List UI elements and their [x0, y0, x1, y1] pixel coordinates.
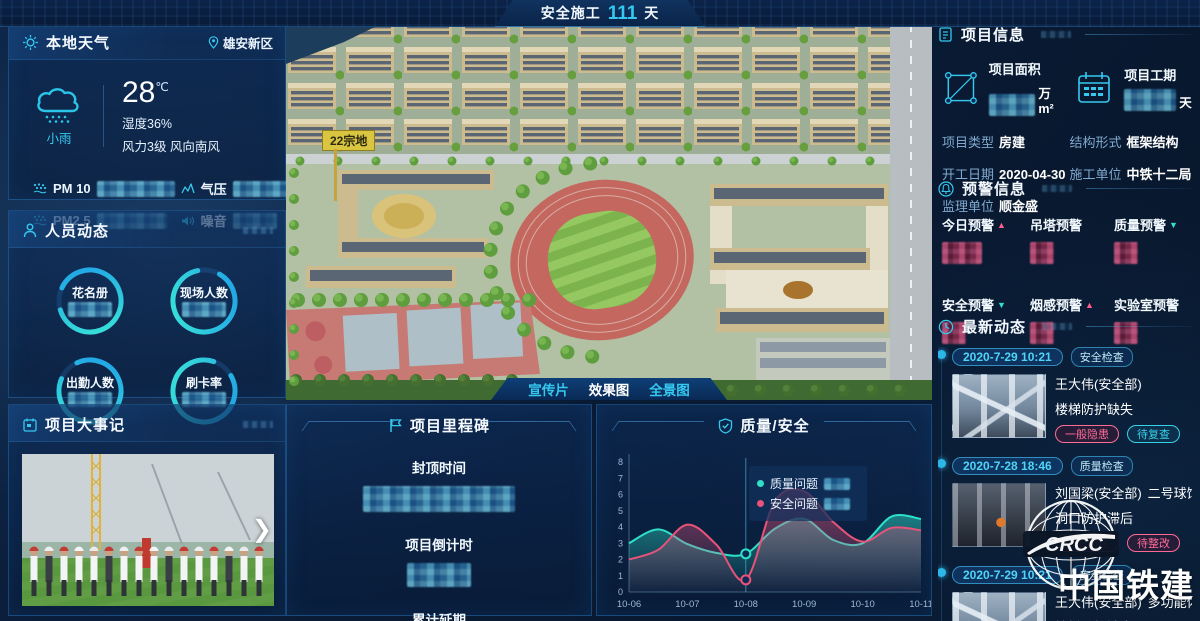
tooltip-row: 安全问题 — [757, 495, 859, 512]
temperature-value: 28 — [122, 76, 155, 109]
svg-text:6: 6 — [618, 490, 623, 500]
field-structure-type: 结构形式框架结构 — [1070, 132, 1192, 151]
ring-label: 花名册 — [53, 284, 127, 301]
warning-1: 吊塔预警 — [1030, 215, 1114, 269]
warning-value-censored — [1030, 242, 1114, 269]
svg-text:8: 8 — [618, 457, 623, 467]
scene-tab-2[interactable]: 全景图 — [649, 379, 690, 399]
feed-item-top: 2020-7-29 10:21安全检查 — [952, 347, 1192, 367]
warning-label-text: 吊塔预警 — [1030, 215, 1082, 234]
progress-ring — [53, 264, 127, 338]
trend-down-icon: ▼ — [1169, 220, 1178, 230]
weather-condition: 小雨 — [33, 85, 85, 147]
feed-photo-thumbnail — [952, 483, 1046, 547]
warning-label-text: 安全预警 — [942, 295, 994, 314]
ring-value-censored — [182, 302, 226, 317]
personnel-ring-1: 现场人数 — [167, 264, 241, 338]
feed-header: 最新动态 — [938, 316, 1192, 337]
weather-panel-title: 本地天气 — [46, 32, 110, 53]
field-project-type: 项目类型房建 — [942, 132, 1066, 151]
svg-text:10-08: 10-08 — [734, 599, 758, 610]
warning-label: 吊塔预警 — [1030, 215, 1114, 234]
feed-photo-thumbnail — [952, 592, 1046, 621]
feed-item-1[interactable]: 2020-7-28 18:46质量检查刘国梁(安全部)二号球馆洞口防护滞后一般问… — [952, 456, 1192, 552]
svg-text:1: 1 — [618, 571, 623, 581]
timeline-dot-icon — [938, 568, 946, 577]
safe-days-unit: 天 — [644, 3, 659, 23]
location-pin-icon — [208, 36, 219, 49]
quality-safety-chart: 01234567810-0610-0710-0810-0910-1010-11 … — [597, 440, 931, 621]
metric-pm10-value-censored — [97, 181, 175, 197]
feed-item-texts: 刘国梁(安全部)二号球馆洞口防护滞后一般问题待整改 — [1055, 483, 1192, 552]
safe-days-banner: 安全施工 111 天 — [495, 0, 706, 27]
warning-value-block — [942, 242, 982, 264]
feed-category-badge: 质量检查 — [1071, 456, 1133, 476]
feed-item-top: 2020-7-28 18:46质量检查 — [952, 456, 1192, 476]
events-panel-header: 项目大事记 — [9, 405, 285, 442]
feed-item-top: 2020-7-29 10:21安全检查 — [952, 565, 1192, 585]
svg-text:7: 7 — [618, 473, 623, 483]
feed-item-0[interactable]: 2020-7-29 10:21安全检查王大伟(安全部)楼梯防护缺失一般隐患待复查 — [952, 347, 1192, 443]
decorative-bracket — [301, 421, 394, 431]
feed-category-badge: 安全检查 — [1071, 565, 1133, 585]
weather-details: 28℃ 湿度36% 风力3级 风向南风 — [122, 76, 220, 155]
document-icon — [938, 27, 953, 42]
feed-tag-list: 一般问题待整改 — [1055, 534, 1192, 552]
milestone-group-photo: ❯ — [22, 454, 274, 606]
feed-tag-待整改: 待整改 — [1127, 534, 1180, 552]
decorative-bracket — [483, 421, 576, 431]
calendar-flag-icon — [23, 418, 37, 432]
feed-item-body: 刘国梁(安全部)二号球馆洞口防护滞后一般问题待整改 — [952, 483, 1192, 552]
trend-down-icon: ▼ — [997, 300, 1006, 310]
warning-label: 安全预警▼ — [942, 295, 1030, 314]
warning-label: 质量预警▼ — [1114, 215, 1196, 234]
feed-inspector-name: 王大伟(安全部) — [1055, 592, 1142, 611]
warning-label-text: 今日预警 — [942, 215, 994, 234]
decorative-blur — [243, 421, 273, 428]
personnel-rings: 花名册现场人数出勤人数刷卡率 — [9, 248, 285, 428]
field-value: 房建 — [999, 135, 1025, 150]
milestone-value-censored — [363, 486, 515, 512]
feed-tag-待复查: 待复查 — [1127, 425, 1180, 443]
safe-days-label: 安全施工 — [541, 3, 601, 23]
svg-text:10-07: 10-07 — [675, 599, 699, 610]
milestone-value-censored — [407, 563, 471, 587]
decorative-blur — [243, 227, 273, 234]
quality-safety-panel: 质量/安全 01234567810-0610-0710-0810-0910-10… — [596, 404, 932, 616]
pm-icon — [33, 183, 47, 194]
feed-item-body: 王大伟(安全部)多功能体育馆楼梯防护缺失一般隐患待复查 — [952, 592, 1192, 621]
feed-item-texts: 王大伟(安全部)楼梯防护缺失一般隐患待复查 — [1055, 374, 1192, 443]
feed-name-line: 王大伟(安全部) — [1055, 374, 1192, 393]
metric-pm10: PM 10 — [33, 179, 175, 198]
weather-wind: 风力3级 风向南风 — [122, 136, 220, 155]
feed-date-badge: 2020-7-29 10:21 — [952, 348, 1063, 366]
ring-value-censored — [68, 302, 112, 317]
tooltip-value-censored — [824, 498, 850, 510]
feed-name-line: 刘国梁(安全部)二号球馆 — [1055, 483, 1192, 502]
svg-text:0: 0 — [618, 587, 623, 597]
milestone-panel: 项目里程碑 封顶时间 项目倒计时 累计延期 — [286, 404, 592, 616]
feed-date-badge: 2020-7-28 18:46 — [952, 457, 1063, 475]
milestone-label: 项目倒计时 — [287, 534, 591, 554]
trend-up-icon: ▲ — [1085, 300, 1094, 310]
svg-text:2: 2 — [618, 555, 623, 565]
shield-check-icon — [718, 418, 733, 434]
personnel-panel: 人员动态 花名册现场人数出勤人数刷卡率 — [8, 210, 286, 398]
warning-label-text: 质量预警 — [1114, 215, 1166, 234]
warning-value-block — [1114, 242, 1138, 264]
svg-text:4: 4 — [618, 522, 623, 532]
tooltip-value-censored — [824, 478, 850, 490]
feed-issue-text: 洞口防护滞后 — [1055, 508, 1192, 527]
feed-category-badge: 安全检查 — [1071, 347, 1133, 367]
clock-icon — [938, 319, 954, 335]
plot-label: 22宗地 — [322, 130, 375, 151]
plot-label-pole — [334, 149, 337, 201]
svg-text:5: 5 — [618, 506, 623, 516]
project-info-section: 项目信息 项目面积 万m² — [938, 24, 1192, 174]
pressure-icon — [181, 183, 195, 194]
field-value: 框架结构 — [1127, 135, 1179, 150]
milestone-topping-time: 封顶时间 — [287, 457, 591, 517]
svg-text:10-10: 10-10 — [850, 599, 874, 610]
divider — [1086, 188, 1192, 189]
feed-title: 最新动态 — [962, 316, 1026, 337]
project-info-header: 项目信息 — [938, 24, 1192, 45]
milestone-delay: 累计延期 — [287, 609, 591, 621]
person-icon — [23, 223, 37, 238]
milestone-label: 累计延期 — [287, 609, 591, 621]
feed-list: 2020-7-29 10:21安全检查王大伟(安全部)楼梯防护缺失一般隐患待复查… — [938, 347, 1192, 621]
trend-up-icon: ▲ — [997, 220, 1006, 230]
feed-location: 多功能体育馆 — [1148, 592, 1192, 611]
site-3d-view: 22宗地 宣传片效果图全景图 — [286, 8, 932, 400]
milestone-panel-header: 项目里程碑 — [287, 405, 591, 440]
tooltip-row: 质量问题 — [757, 475, 859, 492]
weather-main: 小雨 28℃ 湿度36% 风力3级 风向南风 — [9, 60, 285, 163]
metric-pressure: 气压 — [181, 179, 295, 198]
weather-location: 雄安新区 — [208, 33, 273, 52]
legend-dot-icon — [757, 500, 764, 507]
group-photo-illustration — [22, 454, 274, 606]
feed-date-badge: 2020-7-29 10:21 — [952, 566, 1063, 584]
warnings-header: 预警信息 — [938, 178, 1192, 199]
carousel-next-button[interactable]: ❯ — [252, 518, 272, 542]
quality-safety-title: 质量/安全 — [740, 415, 809, 436]
feed-tag-一般问题: 一般问题 — [1055, 534, 1119, 552]
weather-location-label: 雄安新区 — [223, 33, 273, 52]
feed-name-line: 王大伟(安全部)多功能体育馆 — [1055, 592, 1192, 611]
progress-ring — [167, 264, 241, 338]
stat-project-area: 项目面积 万m² — [942, 59, 1063, 116]
scene-tab-1[interactable]: 效果图 — [589, 379, 630, 399]
stat-duration-unit: 天 — [1179, 92, 1192, 111]
ring-label: 出勤人数 — [53, 374, 127, 391]
timeline-dot-icon — [938, 459, 946, 468]
feed-issue-text: 楼梯防护缺失 — [1055, 617, 1192, 621]
warning-label: 今日预警▲ — [942, 215, 1030, 234]
weather-panel: 本地天气 雄安新区 小雨 28℃ 湿度36% 风力3级 风向南风 — [8, 22, 286, 200]
ring-label: 刷卡率 — [167, 374, 241, 391]
stat-area-value-censored — [989, 94, 1036, 116]
feed-section: 最新动态 2020-7-29 10:21安全检查王大伟(安全部)楼梯防护缺失一般… — [938, 316, 1192, 621]
warning-label-text: 烟感预警 — [1030, 295, 1082, 314]
stat-project-duration: 项目工期 天 — [1073, 59, 1192, 116]
feed-photo-thumbnail — [952, 374, 1046, 438]
weather-humidity: 湿度36% — [122, 113, 220, 132]
feed-tag-list: 一般隐患待复查 — [1055, 425, 1192, 443]
field-label: 结构形式 — [1070, 135, 1122, 150]
top-header-bar: 安全施工 111 天 — [0, 0, 1200, 27]
metric-pm10-label: PM 10 — [53, 181, 91, 196]
feed-item-body: 王大伟(安全部)楼梯防护缺失一般隐患待复查 — [952, 374, 1192, 443]
feed-item-texts: 王大伟(安全部)多功能体育馆楼梯防护缺失一般隐患待复查 — [1055, 592, 1192, 621]
feed-issue-text: 楼梯防护缺失 — [1055, 399, 1192, 418]
svg-text:3: 3 — [618, 538, 623, 548]
warning-label-text: 实验室预警 — [1114, 295, 1179, 314]
decorative-blur — [1042, 323, 1072, 330]
quality-safety-header: 质量/安全 — [597, 405, 931, 440]
rain-cloud-icon — [33, 85, 85, 125]
scene-view-tabs: 宣传片效果图全景图 — [491, 378, 727, 400]
events-panel-title: 项目大事记 — [45, 414, 125, 435]
decorative-bracket — [823, 421, 916, 431]
personnel-ring-0: 花名册 — [53, 264, 127, 338]
warning-0: 今日预警▲ — [942, 215, 1030, 269]
safe-days-value: 111 — [608, 4, 638, 23]
divider — [1086, 326, 1192, 327]
tooltip-series-label: 质量问题 — [770, 475, 818, 492]
decorative-bracket — [611, 421, 704, 431]
field-label: 项目类型 — [942, 135, 994, 150]
stat-area-unit: 万m² — [1038, 83, 1063, 116]
campus-render — [286, 8, 932, 400]
svg-text:10-06: 10-06 — [617, 599, 641, 610]
legend-dot-icon — [757, 480, 764, 487]
decorative-blur — [1042, 185, 1072, 192]
weather-panel-header: 本地天气 雄安新区 — [9, 23, 285, 60]
ring-label: 现场人数 — [167, 284, 241, 301]
feed-inspector-name: 王大伟(安全部) — [1055, 374, 1142, 393]
alarm-bell-icon — [938, 181, 954, 197]
warning-2: 质量预警▼ — [1114, 215, 1196, 269]
project-info-stats: 项目面积 万m² 项目工期 天 — [938, 45, 1192, 118]
decorative-blur — [1041, 31, 1071, 38]
chart-tooltip: 质量问题安全问题 — [749, 466, 867, 521]
milestone-countdown: 项目倒计时 — [287, 534, 591, 592]
warning-value-block — [1030, 242, 1054, 264]
weather-temperature: 28℃ — [122, 76, 220, 109]
svg-text:10-11: 10-11 — [909, 599, 931, 610]
calendar-icon — [1073, 67, 1115, 109]
personnel-panel-title: 人员动态 — [45, 220, 109, 241]
feed-location: 二号球馆 — [1148, 483, 1192, 502]
temperature-unit: ℃ — [155, 80, 168, 94]
warnings-section: 预警信息 今日预警▲吊塔预警质量预警▼安全预警▼烟感预警▲实验室预警 — [938, 178, 1192, 312]
tooltip-series-label: 安全问题 — [770, 495, 818, 512]
stat-area-label: 项目面积 — [989, 59, 1063, 78]
timeline-dot-icon — [938, 350, 946, 359]
warning-value-censored — [942, 242, 1030, 269]
divider — [1085, 34, 1192, 35]
feed-tag-一般隐患: 一般隐患 — [1055, 425, 1119, 443]
stat-duration-label: 项目工期 — [1124, 65, 1192, 84]
warning-label: 实验室预警 — [1114, 295, 1196, 314]
sun-gear-icon — [23, 35, 38, 50]
area-icon — [942, 67, 980, 109]
feed-item-2[interactable]: 2020-7-29 10:21安全检查王大伟(安全部)多功能体育馆楼梯防护缺失一… — [952, 565, 1192, 621]
project-info-title: 项目信息 — [961, 24, 1025, 45]
events-panel: 项目大事记 ❯ — [8, 404, 286, 616]
svg-text:10-09: 10-09 — [792, 599, 816, 610]
stat-duration-value-censored — [1124, 89, 1176, 111]
milestone-label: 封顶时间 — [287, 457, 591, 477]
milestone-panel-title: 项目里程碑 — [410, 415, 490, 436]
weather-condition-label: 小雨 — [46, 128, 71, 147]
dashboard-page: 安全施工 111 天 — [0, 0, 1200, 621]
warnings-title: 预警信息 — [962, 178, 1026, 199]
personnel-panel-header: 人员动态 — [9, 211, 285, 248]
divider — [103, 85, 104, 147]
feed-inspector-name: 刘国梁(安全部) — [1055, 483, 1142, 502]
metric-pressure-label: 气压 — [201, 179, 227, 198]
warning-value-censored — [1114, 242, 1196, 269]
scene-tab-0[interactable]: 宣传片 — [528, 379, 569, 399]
warning-label: 烟感预警▲ — [1030, 295, 1114, 314]
